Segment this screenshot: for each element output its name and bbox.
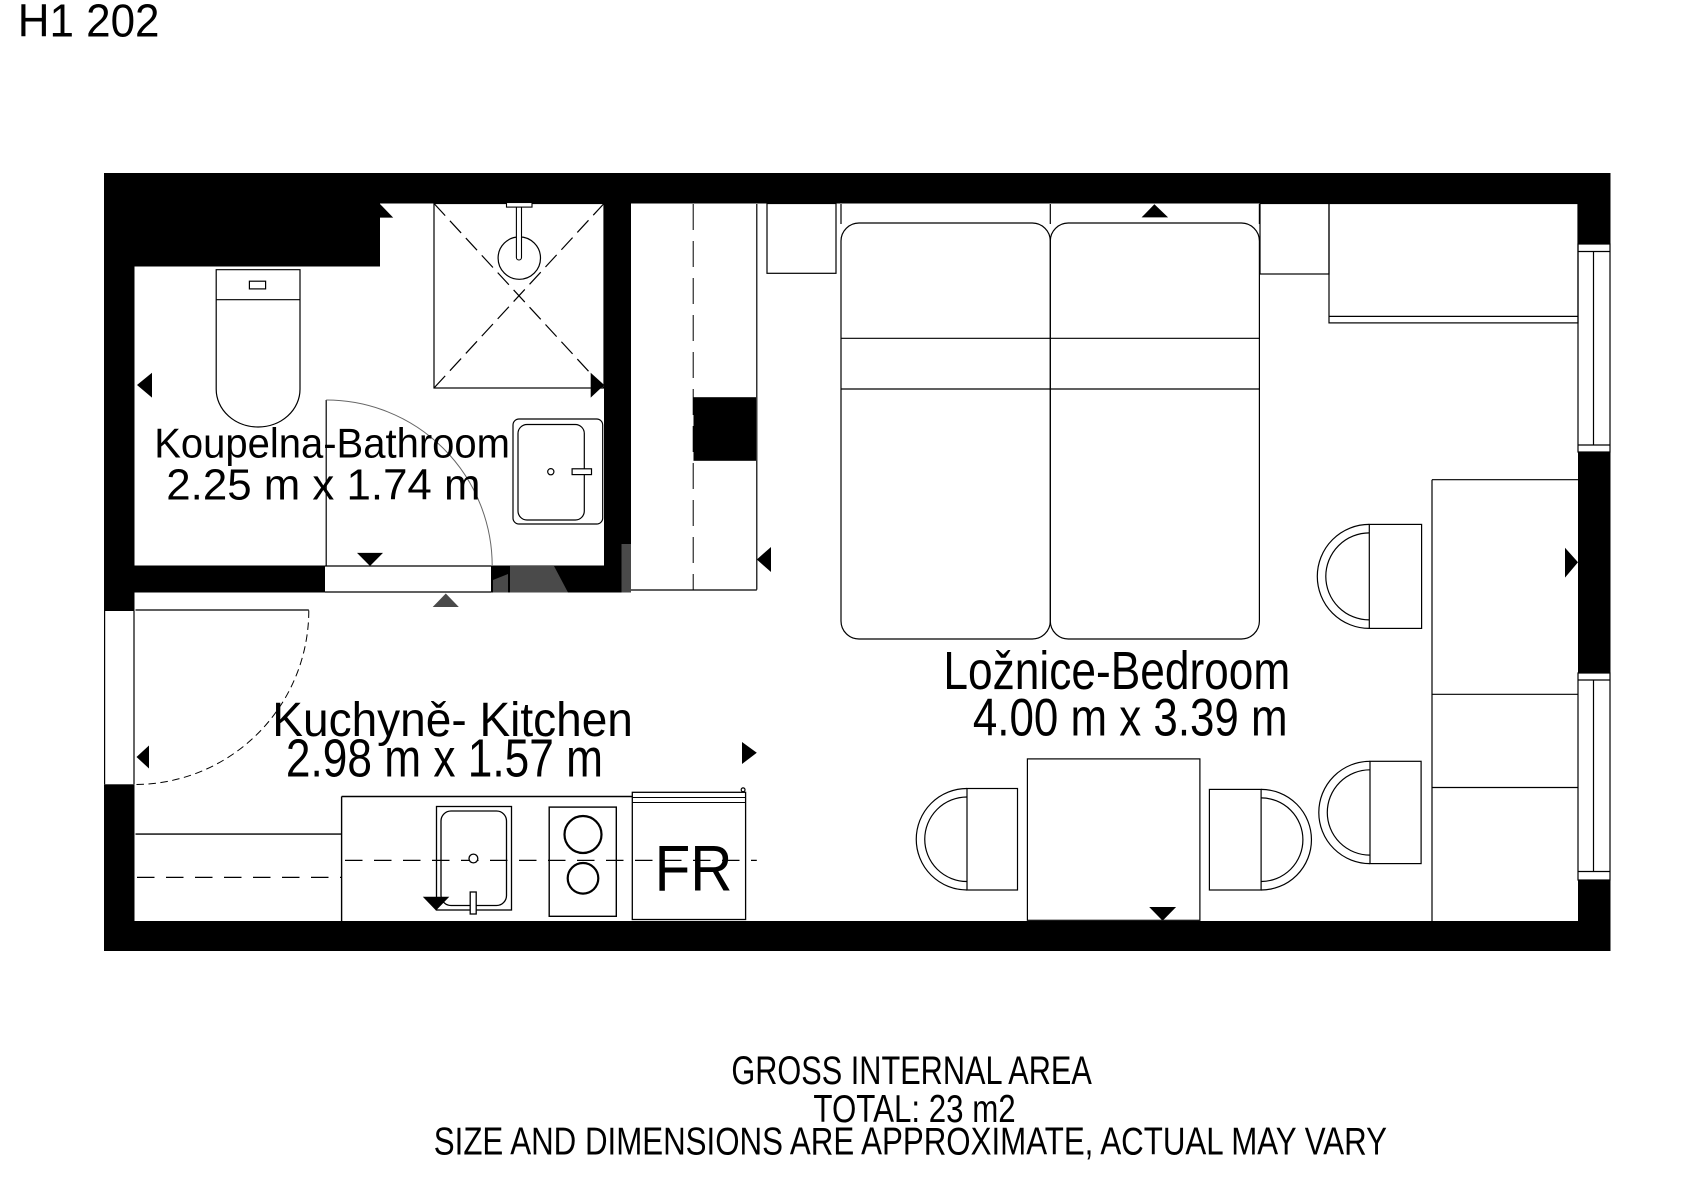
svg-text:4.00 m x 3.39 m: 4.00 m x 3.39 m (973, 689, 1288, 748)
svg-text:2.98 m x 1.57 m: 2.98 m x 1.57 m (286, 729, 603, 789)
svg-text:SIZE AND DIMENSIONS ARE APPROX: SIZE AND DIMENSIONS ARE APPROXIMATE, ACT… (434, 1120, 1387, 1163)
svg-text:H1 202: H1 202 (18, 0, 160, 46)
svg-text:GROSS INTERNAL AREA: GROSS INTERNAL AREA (731, 1049, 1092, 1093)
svg-text:2.25 m x 1.74 m: 2.25 m x 1.74 m (166, 461, 480, 509)
svg-text:Koupelna-Bathroom: Koupelna-Bathroom (154, 420, 510, 467)
svg-text:FR: FR (655, 832, 733, 905)
